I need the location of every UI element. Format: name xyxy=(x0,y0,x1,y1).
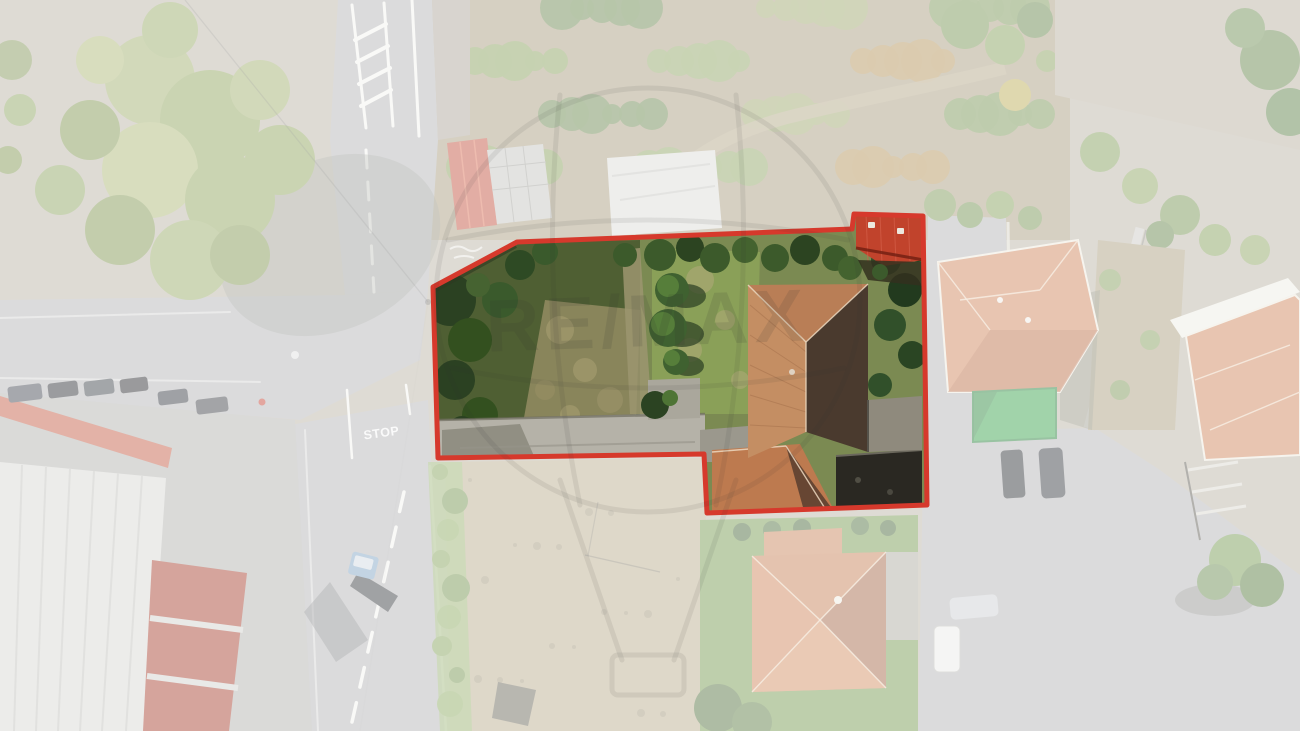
red-roof-outbuilding xyxy=(856,213,924,286)
watermark-brand-text: RE/MAX xyxy=(484,273,811,367)
aerial-photo-canvas: STOP xyxy=(0,0,1300,731)
aerial-property-photo: STOP xyxy=(0,0,1300,731)
east-patio xyxy=(868,396,922,452)
